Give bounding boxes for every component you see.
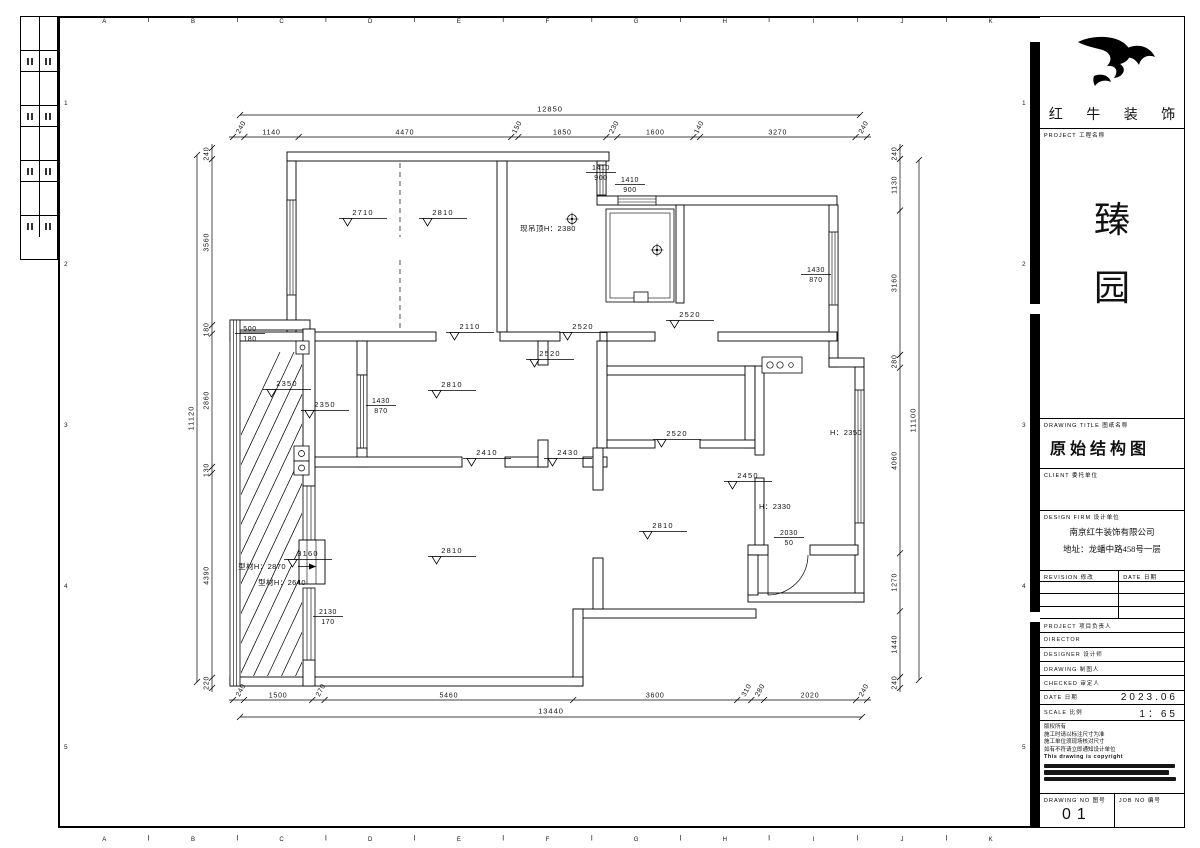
floor-plan: 2710281021102520252023502350281025202410… <box>0 0 1035 848</box>
design-firm-label: DESIGN FIRM 设计单位 <box>1040 511 1184 521</box>
svg-text:12850: 12850 <box>537 105 563 114</box>
door-swing <box>768 555 808 595</box>
note-line: 版权所有 <box>1044 724 1180 732</box>
grid-number: 1 <box>64 100 68 107</box>
svg-text:1410: 1410 <box>621 177 639 184</box>
job-no-label: JOB NO 编号 <box>1115 794 1184 804</box>
staff-rows: PROJECT 项目负责人DIRECTORDESIGNER 设计师DRAWING… <box>1040 619 1184 721</box>
svg-text:2810: 2810 <box>432 208 454 217</box>
client-label: CLIENT 委托单位 <box>1040 469 1184 479</box>
svg-text:D: D <box>368 19 373 25</box>
svg-text:E: E <box>457 837 461 843</box>
svg-text:C: C <box>279 19 284 25</box>
company-name: 红 牛 装 饰 <box>1049 104 1186 128</box>
staff-row: DIRECTOR <box>1040 633 1184 647</box>
staff-row: DRAWING 制图人 <box>1040 662 1184 676</box>
svg-text:型材H：2640: 型材H：2640 <box>258 577 306 587</box>
svg-text:240: 240 <box>892 675 899 689</box>
svg-text:130: 130 <box>204 463 211 477</box>
svg-text:3270: 3270 <box>768 130 787 137</box>
revision-col-label: REVISION 修改 <box>1040 571 1119 581</box>
svg-text:310: 310 <box>741 683 753 698</box>
bull-swoosh-logo <box>1064 32 1160 104</box>
svg-text:J: J <box>901 19 904 25</box>
svg-text:4470: 4470 <box>396 130 415 137</box>
svg-text:2350: 2350 <box>276 379 298 388</box>
svg-text:2030: 2030 <box>780 530 798 537</box>
copyright-notes: 版权所有施工时请以标注尺寸为准施工单位须现场核对尺寸如有不符请立即通知设计单位T… <box>1040 721 1184 794</box>
svg-text:K: K <box>989 837 993 843</box>
svg-text:A: A <box>102 837 106 843</box>
svg-text:900: 900 <box>623 187 636 194</box>
staff-row: CHECKED 审定人 <box>1040 676 1184 690</box>
svg-text:2810: 2810 <box>652 521 674 530</box>
svg-text:E: E <box>457 19 461 25</box>
svg-text:A: A <box>102 19 106 25</box>
svg-text:2130: 2130 <box>319 609 337 616</box>
svg-text:11120: 11120 <box>187 406 196 431</box>
svg-text:I: I <box>813 837 815 843</box>
staff-row: PROJECT 项目负责人 <box>1040 619 1184 633</box>
illegible-note-line <box>1044 764 1175 769</box>
svg-text:C: C <box>279 837 284 843</box>
svg-text:2520: 2520 <box>539 349 561 358</box>
svg-text:870: 870 <box>374 408 387 415</box>
drawing-no-value: 01 <box>1040 806 1114 824</box>
svg-text:2450: 2450 <box>737 471 759 480</box>
svg-text:240: 240 <box>892 146 899 160</box>
svg-text:2350: 2350 <box>314 400 336 409</box>
svg-text:F: F <box>546 837 550 843</box>
svg-text:280: 280 <box>892 354 899 368</box>
svg-text:870: 870 <box>809 277 822 284</box>
windows <box>230 165 864 686</box>
svg-text:4060: 4060 <box>892 451 899 470</box>
note-line: This drawing is copyright <box>1044 754 1180 762</box>
svg-text:2860: 2860 <box>204 391 211 410</box>
drawing-title-section: DRAWING TITLE 图纸名称 原始结构图 <box>1040 419 1184 469</box>
staff-row: SCALE 比例1：65 <box>1040 705 1184 720</box>
svg-text:150: 150 <box>511 120 523 135</box>
project-section: PROJECT 工程名称 臻 园 <box>1040 129 1184 419</box>
note-line: 如有不符请立即通知设计单位 <box>1044 747 1180 755</box>
grid-number: 3 <box>1022 422 1026 429</box>
svg-text:H：2350: H：2350 <box>830 428 862 437</box>
drawing-sheet: { "sheet": { "grid_letters": ["A","B","C… <box>0 0 1200 848</box>
svg-text:F: F <box>546 19 550 25</box>
svg-text:1430: 1430 <box>807 267 825 274</box>
grid-number: 5 <box>64 744 68 751</box>
svg-text:1500: 1500 <box>269 693 288 700</box>
svg-text:500: 500 <box>243 326 256 333</box>
svg-text:1410: 1410 <box>592 165 610 172</box>
svg-text:B: B <box>191 19 195 25</box>
svg-text:1270: 1270 <box>892 573 899 592</box>
svg-text:2020: 2020 <box>801 693 820 700</box>
svg-text:230: 230 <box>608 120 620 135</box>
grid-number: 4 <box>64 583 68 590</box>
svg-text:50: 50 <box>785 540 794 547</box>
svg-text:280: 280 <box>754 683 766 698</box>
svg-text:2810: 2810 <box>441 546 463 555</box>
svg-text:K: K <box>989 19 993 25</box>
title-block: 红 牛 装 饰 PROJECT 工程名称 臻 园 DRAWING TITLE 图… <box>1040 16 1185 828</box>
svg-text:11100: 11100 <box>909 408 918 433</box>
project-name: 臻 园 <box>1040 191 1184 311</box>
drawing-title: 原始结构图 <box>1040 429 1184 459</box>
design-firm-name: 南京红牛装饰有限公司 <box>1040 526 1184 538</box>
design-firm-address: 地址：龙蟠中路458号一层 <box>1040 543 1184 555</box>
drawing-title-label: DRAWING TITLE 图纸名称 <box>1040 419 1184 429</box>
svg-text:140: 140 <box>693 120 705 135</box>
svg-text:2520: 2520 <box>679 310 701 319</box>
svg-text:180: 180 <box>243 336 256 343</box>
svg-text:现吊顶H：2380: 现吊顶H：2380 <box>520 224 576 233</box>
svg-text:2810: 2810 <box>441 380 463 389</box>
svg-text:J: J <box>901 837 904 843</box>
project-label: PROJECT 工程名称 <box>1040 129 1184 139</box>
svg-text:1130: 1130 <box>892 176 899 194</box>
svg-text:3160: 3160 <box>297 549 319 558</box>
svg-text:180: 180 <box>204 322 211 336</box>
svg-text:220: 220 <box>204 676 211 690</box>
svg-text:1600: 1600 <box>646 130 665 137</box>
svg-text:3600: 3600 <box>646 693 665 700</box>
svg-text:13440: 13440 <box>538 707 564 716</box>
svg-text:H: H <box>723 837 727 843</box>
svg-text:型材H：2870: 型材H：2870 <box>238 561 286 571</box>
svg-text:1440: 1440 <box>892 635 899 654</box>
svg-text:2110: 2110 <box>460 322 481 331</box>
staff-row: DATE 日期2023.06 <box>1040 691 1184 705</box>
date-col-label: DATE 日期 <box>1119 571 1184 581</box>
svg-text:2430: 2430 <box>557 448 579 457</box>
client-section: CLIENT 委托单位 <box>1040 469 1184 511</box>
illegible-note-line <box>1044 770 1169 775</box>
svg-text:240: 240 <box>858 683 870 698</box>
svg-text:2410: 2410 <box>476 448 498 457</box>
svg-text:3560: 3560 <box>204 233 211 252</box>
grid-number: 2 <box>1022 261 1026 268</box>
svg-text:2520: 2520 <box>666 429 688 438</box>
svg-text:240: 240 <box>858 120 870 135</box>
svg-text:170: 170 <box>321 619 334 626</box>
svg-text:1430: 1430 <box>372 398 390 405</box>
svg-text:G: G <box>634 19 639 25</box>
svg-text:240: 240 <box>235 120 247 135</box>
svg-text:1850: 1850 <box>553 130 572 137</box>
svg-text:4390: 4390 <box>204 566 211 585</box>
staff-row: DESIGNER 设计师 <box>1040 648 1184 662</box>
svg-text:G: G <box>634 837 639 843</box>
illegible-note-line <box>1044 777 1176 782</box>
svg-text:I: I <box>813 19 815 25</box>
svg-text:240: 240 <box>204 147 211 161</box>
svg-text:1140: 1140 <box>262 130 280 137</box>
company-logo-section: 红 牛 装 饰 <box>1040 17 1184 129</box>
svg-text:5460: 5460 <box>439 693 458 700</box>
svg-text:2520: 2520 <box>572 322 594 331</box>
svg-text:3160: 3160 <box>892 273 899 292</box>
grid-number: 1 <box>1022 100 1026 107</box>
svg-text:2710: 2710 <box>352 208 374 217</box>
grid-number: 4 <box>1022 583 1026 590</box>
svg-text:B: B <box>191 837 195 843</box>
note-line: 施工时请以标注尺寸为准 <box>1044 732 1180 740</box>
ceiling-target-icon <box>651 244 664 257</box>
svg-text:D: D <box>368 837 373 843</box>
note-line: 施工单位须现场核对尺寸 <box>1044 739 1180 747</box>
drawing-no-label: DRAWING NO 图号 <box>1040 794 1114 804</box>
grid-number: 3 <box>64 422 68 429</box>
grid-number: 2 <box>64 261 68 268</box>
design-firm-section: DESIGN FIRM 设计单位 南京红牛装饰有限公司 地址：龙蟠中路458号一… <box>1040 511 1184 571</box>
svg-text:H：2330: H：2330 <box>759 502 791 511</box>
svg-text:900: 900 <box>594 175 607 182</box>
grid-number: 5 <box>1022 744 1026 751</box>
svg-text:H: H <box>723 19 727 25</box>
revision-table: REVISION 修改 DATE 日期 <box>1040 571 1184 619</box>
number-row: DRAWING NO 图号 01 JOB NO 编号 <box>1040 794 1184 827</box>
